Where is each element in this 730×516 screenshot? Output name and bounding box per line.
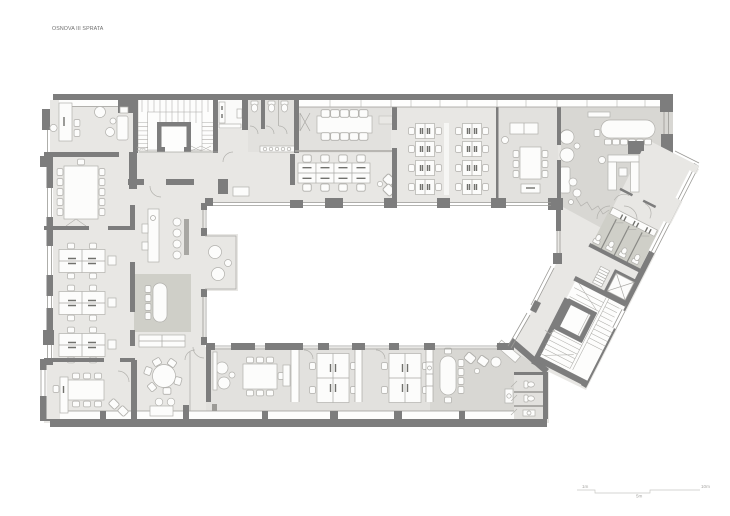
svg-text:5m: 5m [636,494,643,499]
svg-text:OSNOVA III SPRATA: OSNOVA III SPRATA [52,26,104,32]
svg-text:1m: 1m [582,484,589,489]
svg-text:10m: 10m [701,484,710,489]
